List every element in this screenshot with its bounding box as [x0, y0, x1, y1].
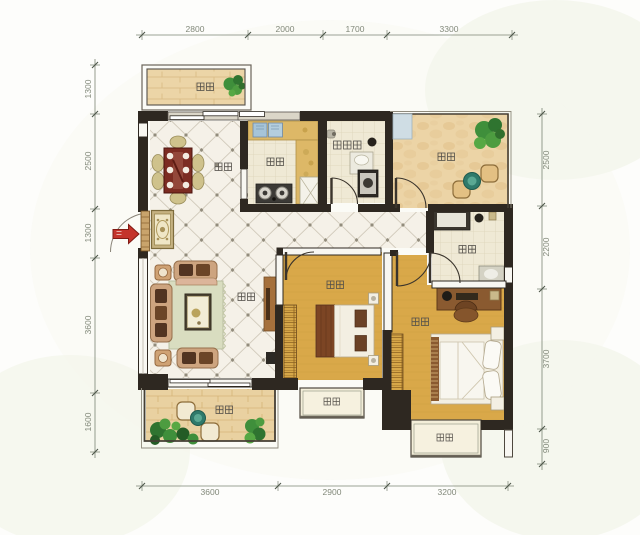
svg-text:2500: 2500: [541, 150, 551, 169]
svg-text:2200: 2200: [541, 237, 551, 256]
svg-text:3600: 3600: [201, 487, 220, 497]
svg-text:3200: 3200: [438, 487, 457, 497]
svg-text:1300: 1300: [83, 223, 93, 242]
svg-text:1700: 1700: [346, 24, 365, 34]
svg-text:3300: 3300: [440, 24, 459, 34]
svg-text:2500: 2500: [83, 151, 93, 170]
svg-text:1300: 1300: [83, 79, 93, 98]
svg-text:1600: 1600: [83, 412, 93, 431]
svg-text:2900: 2900: [323, 487, 342, 497]
svg-text:2800: 2800: [186, 24, 205, 34]
svg-text:3600: 3600: [83, 315, 93, 334]
svg-text:2000: 2000: [276, 24, 295, 34]
svg-text:900: 900: [541, 439, 551, 453]
svg-text:3700: 3700: [541, 349, 551, 368]
